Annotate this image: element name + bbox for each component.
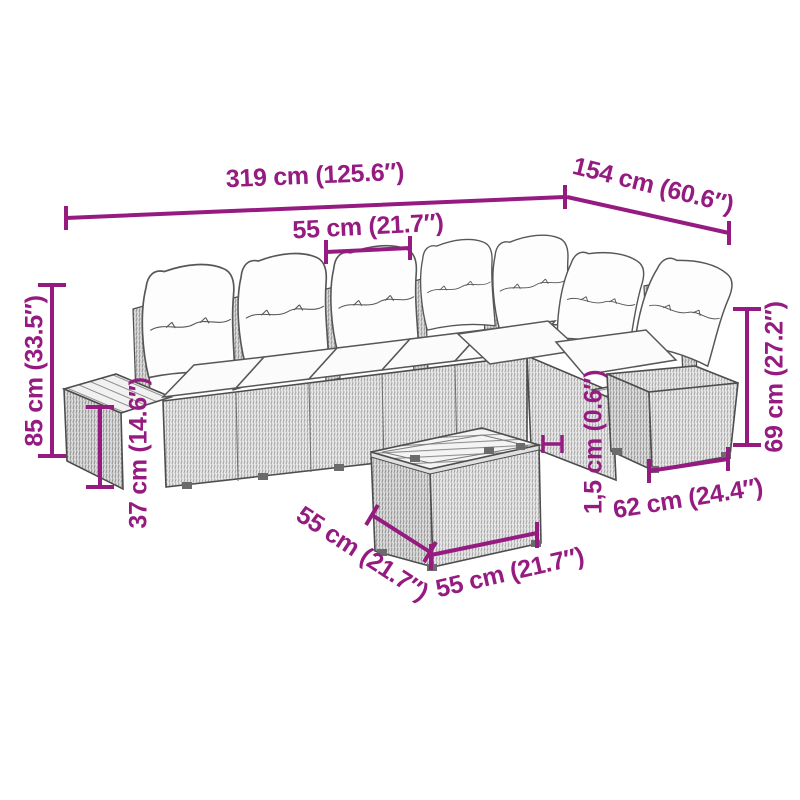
left-arm-table <box>64 374 171 489</box>
coffee-table <box>371 428 541 567</box>
dimension-diagram: 319 cm (125.6″) 154 cm (60.6″) 55 cm (21… <box>0 0 800 800</box>
furniture-illustration <box>0 0 800 800</box>
dim-label-seat-height: 37 cm (14.6″) <box>127 377 152 528</box>
dim-label-tabletop-thickness: 1,5 cm (0.6″) <box>582 370 607 514</box>
dim-label-height-total: 85 cm (33.5″) <box>23 295 48 446</box>
dim-label-side-height: 69 cm (27.2″) <box>763 301 788 452</box>
